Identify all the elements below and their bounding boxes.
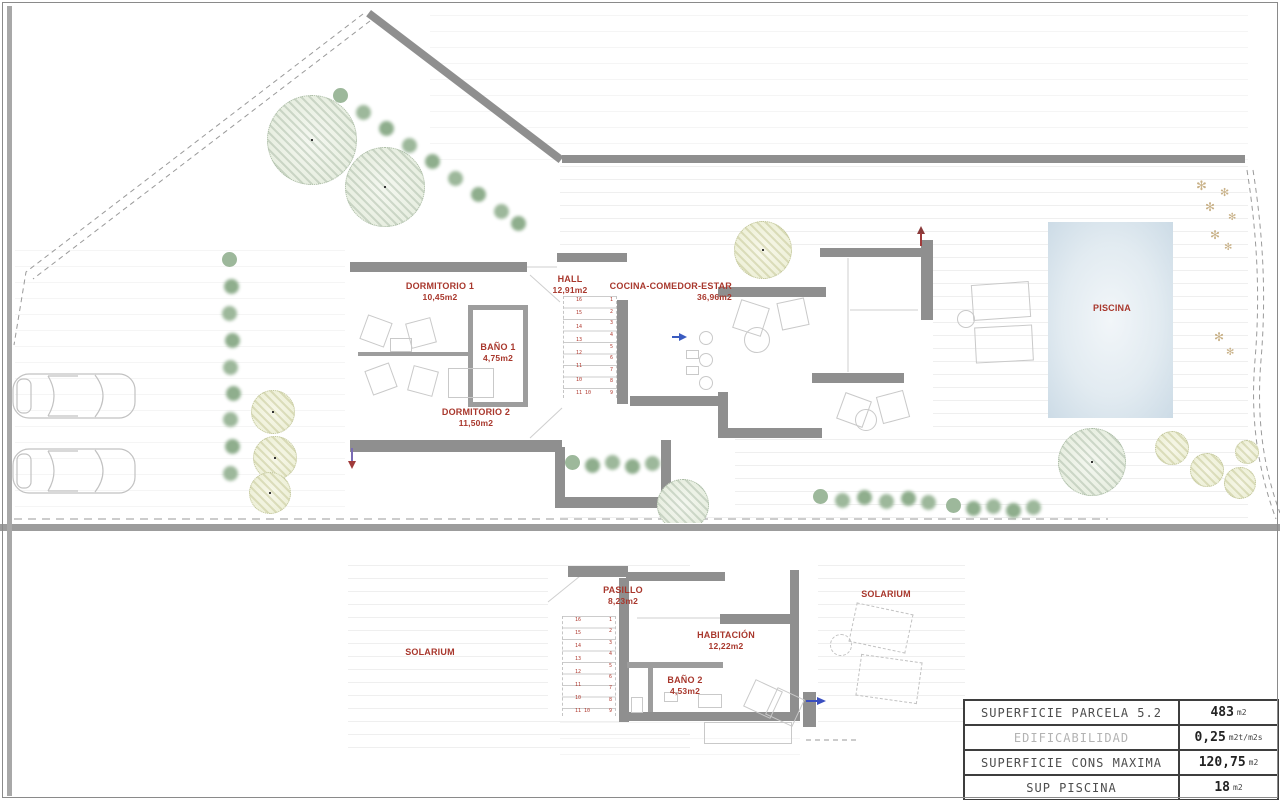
drawing-frame	[2, 2, 1278, 798]
floor-plan-drawing: 1615141312111011 10 123456789 1615141312…	[0, 0, 1280, 800]
